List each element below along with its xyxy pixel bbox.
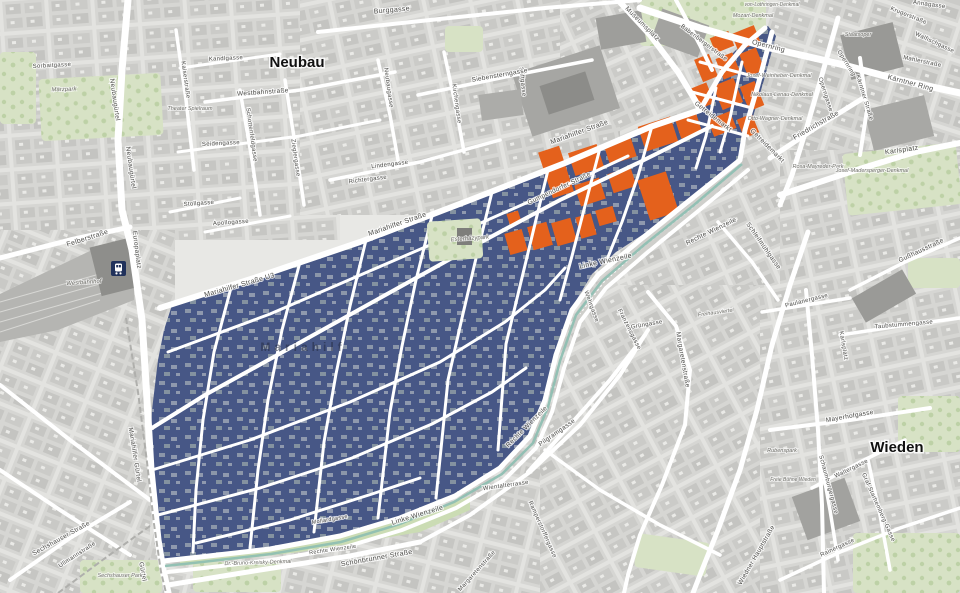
park [908,258,960,288]
park-trees [38,73,163,141]
landmark-label-otto-wagner-denkmal: Otto-Wagner-Denkmal [748,116,804,122]
landmark-label-mozart-denkmal: Mozart-Denkmal [733,13,774,19]
district-label-wieden: Wieden [870,439,923,456]
landmark-label-freie-b-hne-wieden: Freie Bühne Wieden [770,477,816,483]
park [445,26,483,52]
landmark-label-theater-spielraum: Theater Spielraum [167,106,213,112]
landmark-label-sechshauser-park: Sechshauser Park [98,573,143,579]
landmark-label-staatsoper: Staatsoper [845,32,873,38]
westbahnhof-station-icon [111,261,126,276]
district-label-neubau: Neubau [269,54,324,71]
park-trees [0,52,36,124]
landmark-label-nikolaus-lenau-denkmal: Nikolaus-Lenau-Denkmal [751,92,814,98]
landmark-label-von-lothringen-denkmal: von-Lothringen-Denkmal [745,2,801,8]
basemap-zone [760,150,960,593]
landmark-label-rubenspark: Rubenspark [767,448,797,454]
map-canvas[interactable]: BurggasseWestbahnstraßeKandlgasseSeideng… [0,0,960,593]
train-station-icon[interactable] [111,261,126,276]
district-label-mariahilf: Mariahilf [260,340,345,354]
landmark-label-josef-madersperger-denkmal: Josef-Madersperger-Denkmal [835,168,909,174]
map-viewport[interactable]: BurggasseWestbahnstraßeKandlgasseSeideng… [0,0,960,593]
landmark-label-josef-weinheber-denkmal: Josef-Weinheber-Denkmal [746,73,813,79]
landmark-label-m-rzpark: Märzpark [51,87,77,94]
